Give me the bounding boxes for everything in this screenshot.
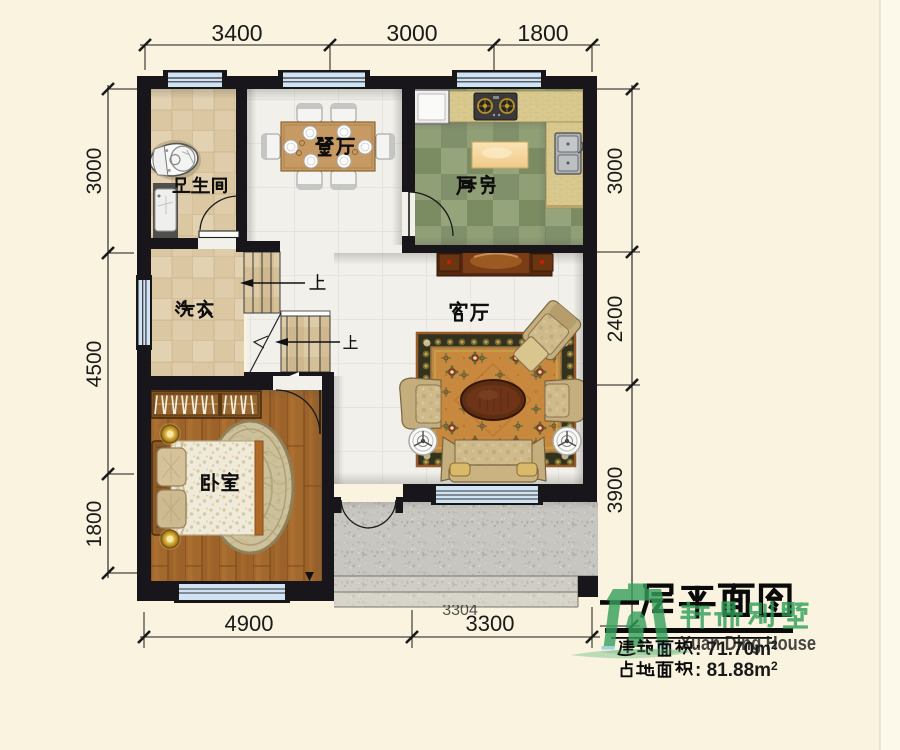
svg-text:3000: 3000 bbox=[604, 148, 627, 195]
svg-text:1800: 1800 bbox=[83, 501, 106, 548]
svg-text:4900: 4900 bbox=[225, 611, 274, 636]
svg-text:2400: 2400 bbox=[604, 296, 627, 343]
svg-text:: 81.88m2: : 81.88m2 bbox=[695, 659, 778, 681]
svg-text:3900: 3900 bbox=[604, 467, 627, 514]
svg-text:3000: 3000 bbox=[386, 20, 437, 46]
svg-text:1800: 1800 bbox=[517, 20, 568, 46]
svg-text:: 71.70m2: : 71.70m2 bbox=[695, 638, 778, 660]
svg-text:3000: 3000 bbox=[83, 148, 106, 195]
svg-text:3400: 3400 bbox=[211, 20, 262, 46]
svg-text:4500: 4500 bbox=[83, 341, 106, 388]
